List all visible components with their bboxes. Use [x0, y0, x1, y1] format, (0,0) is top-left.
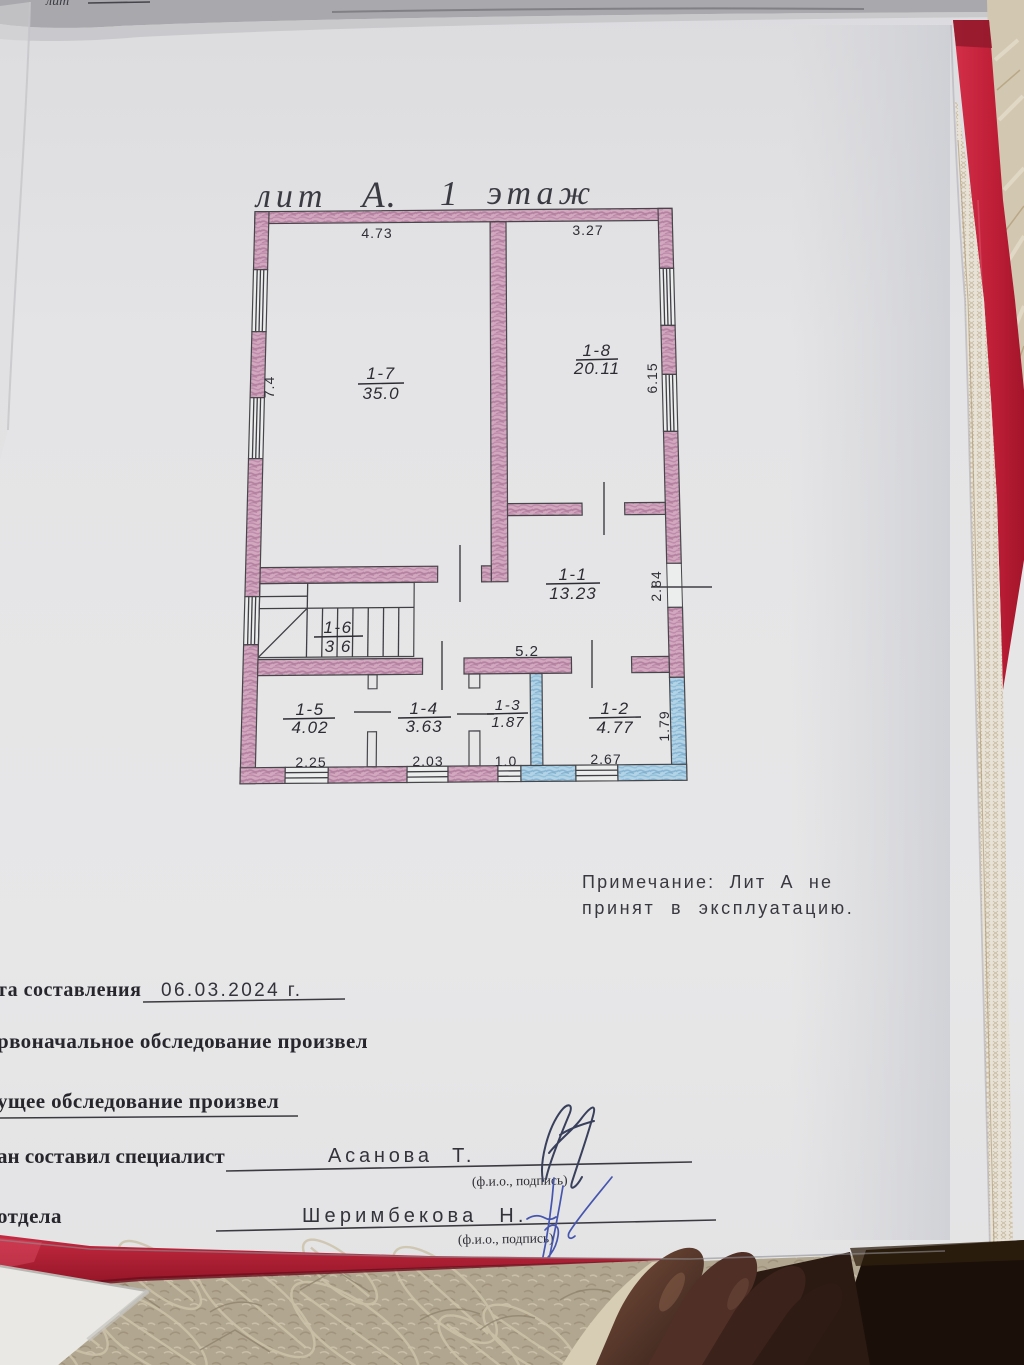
svg-text:2.03: 2.03: [412, 753, 443, 769]
svg-text:35.0: 35.0: [362, 384, 399, 403]
svg-text:1-8: 1-8: [582, 341, 611, 360]
svg-text:1.0: 1.0: [495, 753, 517, 769]
svg-text:А.: А.: [359, 175, 398, 216]
svg-text:4.73: 4.73: [361, 225, 392, 241]
svg-text:4.77: 4.77: [596, 718, 633, 737]
svg-text:1-4: 1-4: [409, 699, 438, 718]
svg-text:Шеримбекова Н.: Шеримбекова Н.: [302, 1205, 528, 1227]
svg-text:1-5: 1-5: [295, 700, 324, 719]
svg-text:13.23: 13.23: [549, 584, 597, 603]
svg-text:ан составил специалист: ан составил специалист: [0, 1144, 225, 1168]
svg-text:3 6: 3 6: [325, 637, 352, 656]
svg-text:отдела: отдела: [0, 1204, 62, 1228]
svg-text:Асанова Т.: Асанова Т.: [328, 1145, 475, 1167]
svg-text:1.79: 1.79: [656, 710, 672, 741]
svg-text:20.11: 20.11: [573, 359, 620, 378]
svg-text:1-7: 1-7: [366, 364, 395, 383]
svg-text:Примечание: Лит А не: Примечание: Лит А не: [582, 872, 833, 892]
svg-text:лит: лит: [254, 178, 327, 215]
svg-text:3.27: 3.27: [572, 222, 603, 238]
svg-text:3.63: 3.63: [405, 717, 442, 736]
svg-text:принят в эксплуатацию.: принят в эксплуатацию.: [582, 898, 854, 918]
svg-text:5.2: 5.2: [515, 643, 539, 660]
svg-text:1: 1: [440, 174, 458, 213]
svg-text:1-2: 1-2: [600, 699, 629, 718]
svg-text:2.84: 2.84: [648, 570, 664, 601]
svg-text:(ф.и.о., подпись): (ф.и.о., подпись): [458, 1230, 554, 1247]
svg-text:2.67: 2.67: [590, 751, 621, 767]
svg-text:лит: лит: [45, 0, 69, 9]
svg-text:та составления: та составления: [0, 979, 141, 1001]
svg-text:1.87: 1.87: [491, 714, 524, 731]
svg-text:этаж: этаж: [487, 175, 595, 212]
svg-text:4.02: 4.02: [291, 718, 328, 737]
svg-text:1-1: 1-1: [558, 565, 587, 584]
svg-text:1-3: 1-3: [495, 697, 521, 714]
svg-text:2.25: 2.25: [295, 754, 326, 770]
svg-text:1-6: 1-6: [323, 618, 352, 637]
svg-text:7.4: 7.4: [261, 376, 277, 398]
svg-text:ущее обследование произвел: ущее обследование произвел: [0, 1089, 279, 1113]
svg-text:6.15: 6.15: [644, 362, 660, 393]
svg-text:рвоначальное обследование прои: рвоначальное обследование произвел: [0, 1029, 368, 1053]
svg-text:06.03.2024 г.: 06.03.2024 г.: [161, 980, 302, 1001]
